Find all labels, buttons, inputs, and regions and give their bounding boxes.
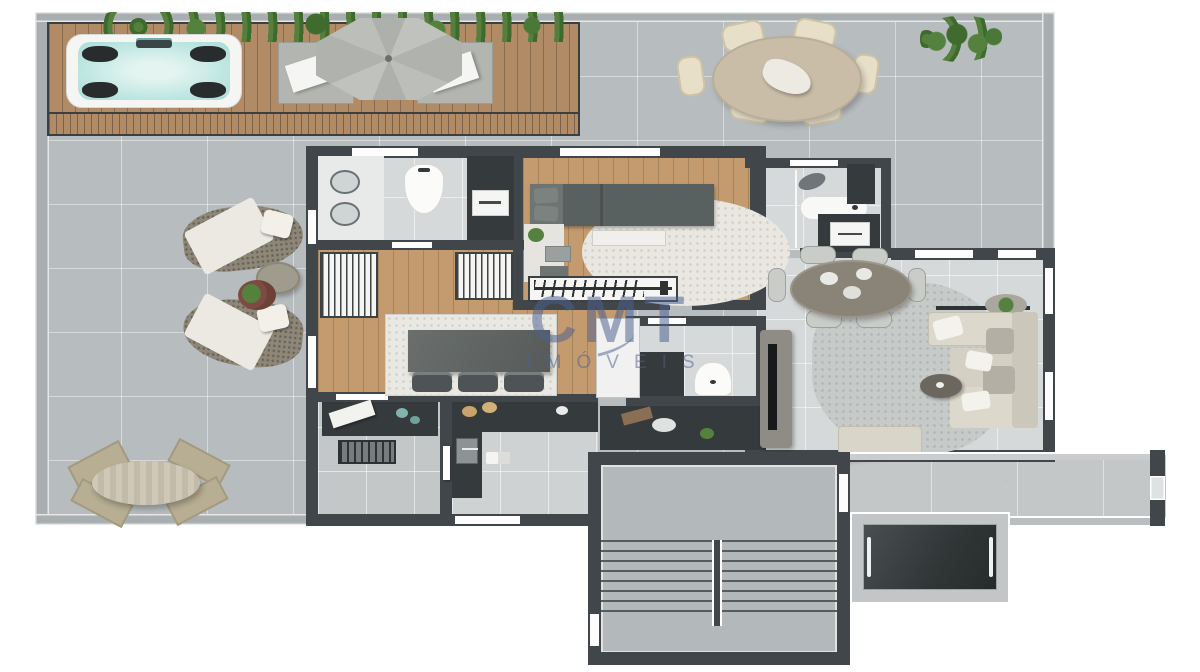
wall-service-bottom (306, 514, 600, 526)
bowl (396, 408, 408, 418)
bowl (482, 402, 497, 413)
pantry-cabinet (596, 318, 640, 398)
sofa-back (1012, 312, 1038, 428)
window (352, 148, 418, 156)
floor-plan: CMT IMÓVEIS (0, 0, 1200, 672)
door-opening (590, 614, 599, 646)
floor-mat (540, 266, 568, 276)
bed-bench (592, 230, 666, 246)
clothes-hangers (534, 280, 644, 297)
wood-deck-edge (47, 112, 580, 136)
window (790, 160, 838, 166)
kitchen-faucet (462, 448, 478, 450)
corridor-end-wall (1150, 450, 1165, 476)
light-switches (486, 452, 510, 464)
wall-bath-suite-right (881, 158, 891, 258)
corridor-floor (845, 455, 1166, 518)
toilet-button (710, 380, 716, 384)
wall-closet-bedroom (513, 146, 523, 310)
corridor-end-window (1150, 476, 1165, 500)
stairwell-wall-bottom (588, 652, 850, 665)
barbecue-grill (338, 440, 396, 464)
plate (820, 272, 838, 285)
table-decor-dot (936, 382, 944, 388)
dresser (545, 246, 571, 262)
hot-tub-seat (82, 82, 118, 98)
tv-screen (768, 344, 777, 430)
indoor-chair (768, 268, 786, 302)
hot-tub-control-panel (136, 38, 172, 48)
dining-chair (412, 372, 452, 392)
sink-basin (330, 202, 360, 226)
kitchen-sink (456, 438, 478, 464)
umbrella-pole (385, 55, 392, 62)
powder-vanity (640, 352, 684, 396)
window (308, 210, 316, 244)
toilet-button (418, 168, 430, 172)
corridor-end-wall (1150, 500, 1165, 526)
bowl (410, 416, 420, 424)
sink-drain-line (838, 233, 862, 235)
plate (843, 286, 861, 299)
plant-pot-small (528, 228, 544, 242)
elevator-cab (863, 524, 997, 590)
vanity-counter (318, 156, 384, 240)
wall-powder-top (626, 316, 766, 326)
door-glass (308, 336, 316, 388)
door-opening (839, 474, 848, 512)
parapet-right (1042, 12, 1055, 252)
bed-pillow (534, 187, 559, 204)
door-opening (455, 516, 520, 524)
window (915, 250, 973, 258)
sofa-cushion (986, 328, 1014, 354)
bath-niche (847, 164, 875, 204)
potted-plant (238, 280, 276, 310)
corridor-rail-top (850, 452, 1150, 460)
window (1045, 372, 1053, 420)
bowl (462, 406, 477, 417)
hot-tub-seat (190, 82, 226, 98)
rack-end-bracket (660, 281, 668, 295)
open-door-leaf (443, 446, 450, 480)
wardrobe (455, 252, 513, 300)
bed-pillow (534, 205, 559, 222)
window (998, 250, 1036, 258)
shower-glass-line (795, 170, 797, 248)
dining-island-top (408, 330, 550, 372)
plant-pot-small (700, 428, 714, 439)
plate (856, 268, 872, 280)
bed-fold-line (600, 184, 603, 226)
kettle (556, 406, 568, 415)
bistro-table (92, 461, 200, 505)
shower-drain (479, 201, 501, 204)
elevator-handle (867, 537, 871, 577)
serving-plate (652, 418, 676, 432)
hot-tub-seat (82, 46, 118, 62)
door-opening (336, 394, 388, 400)
window (1045, 268, 1053, 314)
door-opening (392, 242, 432, 248)
wardrobe (320, 252, 378, 318)
dining-chair (458, 372, 498, 392)
sink-basin (330, 170, 360, 194)
wall-powder-bottom (626, 396, 766, 406)
throw-pillow (961, 390, 991, 412)
hot-tub-seat (190, 46, 226, 62)
corridor-rail-bottom (1008, 516, 1150, 525)
window (560, 148, 660, 156)
dining-chair (504, 372, 544, 392)
door-opening (648, 318, 686, 324)
stairwell-wall-top (588, 452, 850, 465)
elevator-handle (989, 537, 993, 577)
stair-divider-rail (712, 540, 722, 626)
toilet (694, 362, 732, 396)
ottoman-bench (838, 426, 922, 454)
tub-drain (852, 205, 858, 210)
